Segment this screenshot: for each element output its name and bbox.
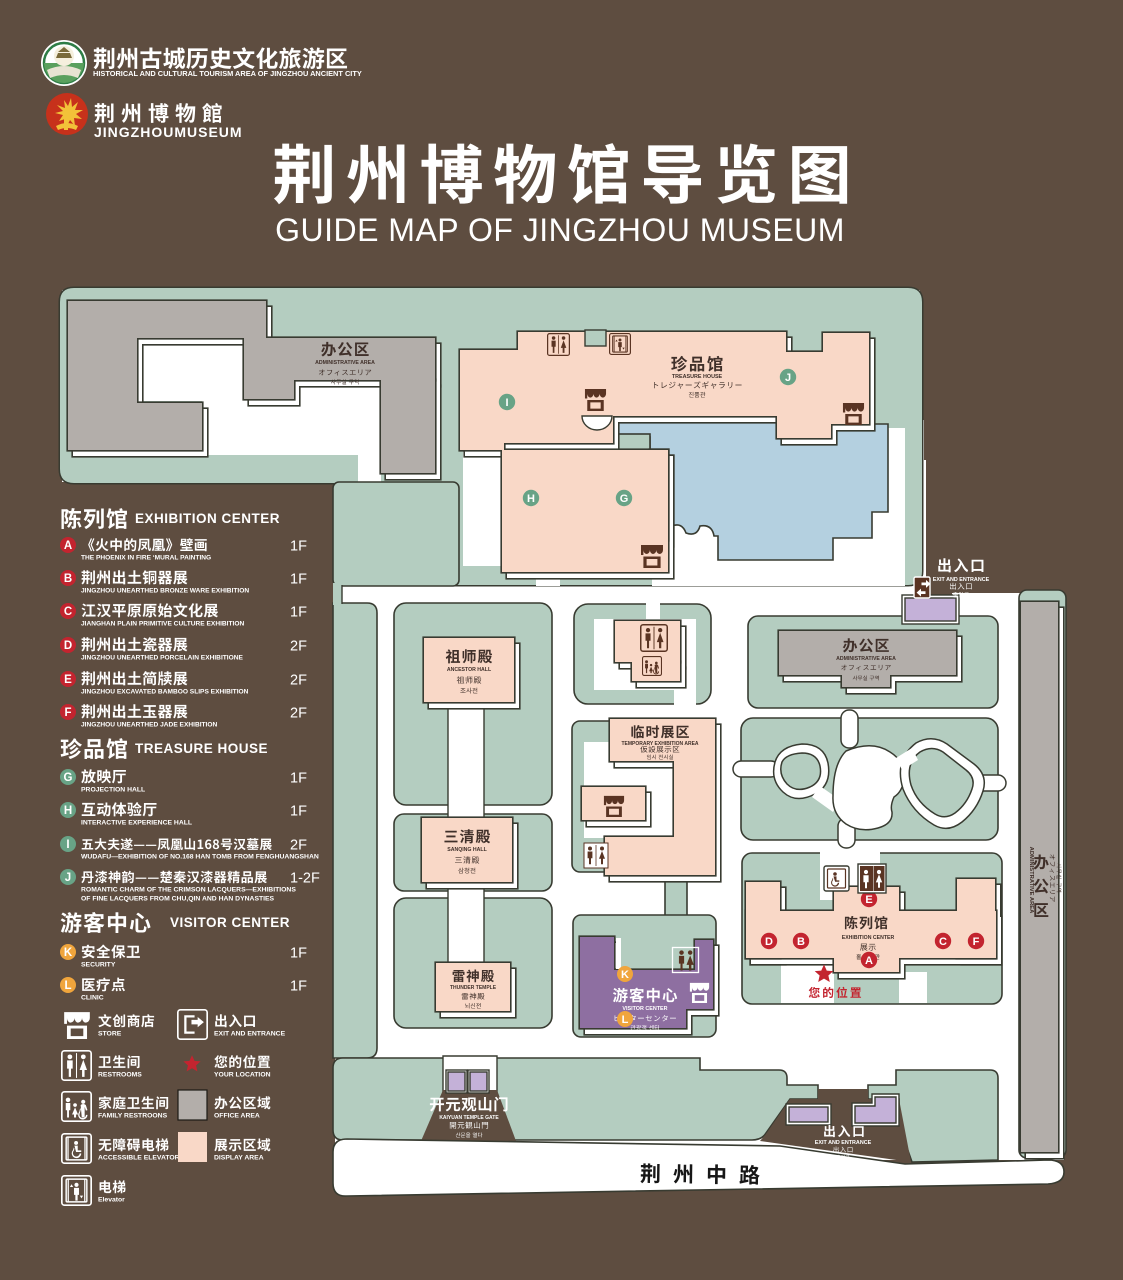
svg-text:2F: 2F <box>290 706 307 722</box>
svg-text:2F: 2F <box>290 639 307 655</box>
svg-text:G: G <box>64 772 73 784</box>
svg-text:EXIT AND ENTRANCE: EXIT AND ENTRANCE <box>815 1140 872 1146</box>
svg-text:E: E <box>64 674 72 686</box>
svg-text:J: J <box>785 372 791 384</box>
svg-text:A: A <box>64 540 72 552</box>
svg-text:ADMINISTRATIVE AREA: ADMINISTRATIVE AREA <box>836 656 896 662</box>
svg-text:YOUR LOCATION: YOUR LOCATION <box>214 1072 271 1079</box>
svg-text:1F: 1F <box>290 572 307 588</box>
svg-text:1-2F: 1-2F <box>290 871 320 887</box>
svg-text:I: I <box>66 839 69 851</box>
svg-text:C: C <box>64 606 72 618</box>
svg-text:I: I <box>505 397 508 409</box>
svg-text:FAMILY RESTROONS: FAMILY RESTROONS <box>98 1113 168 1120</box>
svg-text:GUIDE MAP OF JINGZHOU MUSEUM: GUIDE MAP OF JINGZHOU MUSEUM <box>275 212 845 248</box>
svg-text:SECURITY: SECURITY <box>81 962 116 969</box>
svg-text:EXIT AND ENTRANCE: EXIT AND ENTRANCE <box>933 577 990 583</box>
svg-text:ANCESTOR HALL: ANCESTOR HALL <box>447 667 492 673</box>
svg-text:G: G <box>620 493 629 505</box>
svg-text:THE PHOENIX IN FIRE ‘MURAL PAI: THE PHOENIX IN FIRE ‘MURAL PAINTING <box>81 555 211 562</box>
svg-text:DISPLAY AREA: DISPLAY AREA <box>214 1155 264 1162</box>
svg-text:D: D <box>765 936 773 948</box>
svg-text:THUNDER TEMPLE: THUNDER TEMPLE <box>450 985 497 991</box>
svg-text:B: B <box>64 573 72 585</box>
svg-text:1F: 1F <box>290 539 307 555</box>
svg-text:ADMINISTRATIVE AREA: ADMINISTRATIVE AREA <box>1028 847 1034 914</box>
svg-text:ROMANTIC CHARM OF THE CRIMSON: ROMANTIC CHARM OF THE CRIMSON LACQUERS—E… <box>81 887 296 894</box>
svg-text:KAIYUAN TEMPLE GATE: KAIYUAN TEMPLE GATE <box>439 1115 499 1121</box>
svg-text:1F: 1F <box>290 979 307 995</box>
svg-text:TREASURE HOUSE: TREASURE HOUSE <box>672 374 723 380</box>
svg-text:JINGZHOU UNEARTHED PORCELAIN E: JINGZHOU UNEARTHED PORCELAIN EXHIBITIONE <box>81 655 244 662</box>
svg-text:JIANGHAN PLAIN PRIMITIVE CULTU: JIANGHAN PLAIN PRIMITIVE CULTURE EXHIBIT… <box>81 621 245 628</box>
svg-text:Elevator: Elevator <box>98 1197 125 1204</box>
svg-text:2F: 2F <box>290 673 307 689</box>
svg-text:H: H <box>64 805 72 817</box>
svg-text:HISTORICAL AND CULTURAL TOURIS: HISTORICAL AND CULTURAL TOURISM AREA OF … <box>93 69 362 78</box>
svg-text:L: L <box>622 1014 629 1026</box>
svg-text:K: K <box>621 969 629 981</box>
svg-text:F: F <box>64 707 71 719</box>
svg-text:L: L <box>64 980 71 992</box>
svg-text:TREASURE HOUSE: TREASURE HOUSE <box>135 741 268 756</box>
svg-text:JINGZHOU UNEARTHED JADE EXHIBI: JINGZHOU UNEARTHED JADE EXHIBITION <box>81 722 218 729</box>
svg-text:EXHIBITION CENTER: EXHIBITION CENTER <box>842 935 895 941</box>
svg-text:D: D <box>64 640 72 652</box>
svg-text:F: F <box>973 936 980 948</box>
svg-text:OF FINE LACQUERS FROM CHU,QIN: OF FINE LACQUERS FROM CHU,QIN AND HAN DY… <box>81 896 275 903</box>
svg-text:ADMINISTRATIVE AREA: ADMINISTRATIVE AREA <box>315 360 375 366</box>
svg-text:A: A <box>865 955 873 967</box>
svg-text:1F: 1F <box>290 605 307 621</box>
svg-text:1F: 1F <box>290 771 307 787</box>
svg-text:EXHIBITION CENTER: EXHIBITION CENTER <box>135 511 280 526</box>
svg-text:E: E <box>865 894 872 906</box>
svg-text:JINGZHOU UNEARTHED BRONZE WARE: JINGZHOU UNEARTHED BRONZE WARE EXHIBITIO… <box>81 588 249 595</box>
svg-text:CLINIC: CLINIC <box>81 995 104 1002</box>
svg-text:STORE: STORE <box>98 1031 122 1038</box>
svg-text:VISITOR CENTER: VISITOR CENTER <box>622 1006 667 1012</box>
svg-text:INTERACTIVE EXPERIENCE HALL: INTERACTIVE EXPERIENCE HALL <box>81 820 192 827</box>
svg-text:1F: 1F <box>290 946 307 962</box>
svg-text:2F: 2F <box>290 838 307 854</box>
svg-text:VISITOR CENTER: VISITOR CENTER <box>170 915 290 930</box>
svg-text:OFFICE AREA: OFFICE AREA <box>214 1113 260 1120</box>
svg-text:RESTROOMS: RESTROOMS <box>98 1072 142 1079</box>
svg-text:H: H <box>527 493 535 505</box>
svg-text:C: C <box>939 936 947 948</box>
svg-text:1F: 1F <box>290 804 307 820</box>
svg-text:K: K <box>64 947 73 959</box>
svg-text:EXIT AND ENTRANCE: EXIT AND ENTRANCE <box>214 1031 286 1038</box>
svg-text:ACCESSIBLE ELEVATOR: ACCESSIBLE ELEVATOR <box>98 1155 180 1162</box>
svg-text:B: B <box>797 936 805 948</box>
svg-text:SANQING HALL: SANQING HALL <box>447 847 487 853</box>
svg-text:JINGZHOUMUSEUM: JINGZHOUMUSEUM <box>94 124 243 140</box>
svg-text:J: J <box>65 872 71 884</box>
svg-text:PROJECTION HALL: PROJECTION HALL <box>81 787 145 794</box>
svg-text:JINGZHOU EXCAVATED BAMBOO SLIP: JINGZHOU EXCAVATED BAMBOO SLIPS EXHIBITI… <box>81 689 249 696</box>
svg-text:WUDAFU—EXHIBITION OF NO.168 HA: WUDAFU—EXHIBITION OF NO.168 HAN TOMB FRO… <box>81 854 319 861</box>
